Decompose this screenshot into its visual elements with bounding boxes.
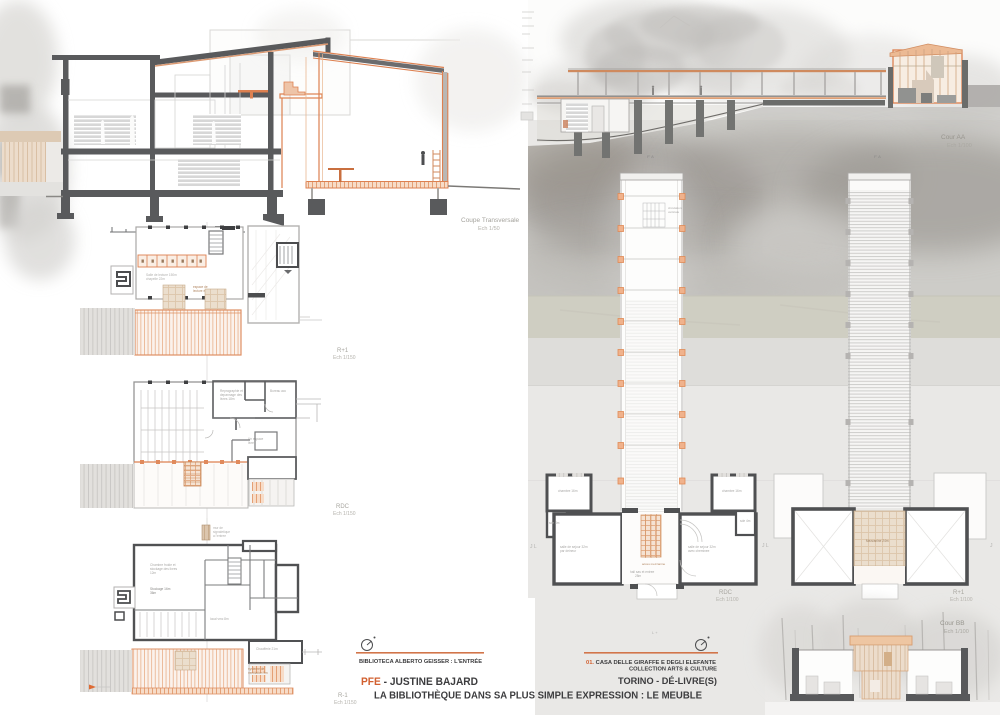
svg-text:28m: 28m <box>635 574 642 578</box>
svg-text:36m: 36m <box>150 591 157 595</box>
svg-text:TORINO - DÉ-LIVRE(S): TORINO - DÉ-LIVRE(S) <box>618 675 717 686</box>
svg-text:local vmc 8m: local vmc 8m <box>210 617 229 621</box>
svg-text:R+1: R+1 <box>953 590 965 596</box>
svg-text:12m: 12m <box>150 571 157 575</box>
svg-text:verticale: verticale <box>668 210 680 214</box>
svg-text:01. CASA DELLE GIRAFFE E DEGLI: 01. CASA DELLE GIRAFFE E DEGLI ELEFANTE <box>586 660 716 666</box>
svg-text:Ech 1/100: Ech 1/100 <box>947 143 972 149</box>
svg-text:par deineur: par deineur <box>560 549 577 553</box>
svg-text:Ech 1/150: Ech 1/150 <box>334 700 357 706</box>
svg-text:Ech 1/150: Ech 1/150 <box>333 355 356 361</box>
svg-text:F' A: F' A <box>647 154 654 159</box>
svg-text:livre: livre <box>248 441 254 445</box>
svg-text:J L: J L <box>762 543 769 549</box>
svg-text:hall sas et entree: hall sas et entree <box>630 570 655 574</box>
svg-text:RDC: RDC <box>719 590 733 596</box>
svg-text:Cour AA: Cour AA <box>941 134 966 141</box>
svg-text:R-1: R-1 <box>338 693 348 699</box>
svg-text:sde 4m: sde 4m <box>549 521 560 525</box>
svg-text:R+1: R+1 <box>337 348 349 354</box>
svg-text:F' A: F' A <box>874 154 881 159</box>
svg-text:Cour BB: Cour BB <box>940 620 965 627</box>
svg-text:RDC: RDC <box>336 504 350 510</box>
svg-text:chambre 16m: chambre 16m <box>722 489 742 493</box>
svg-text:Ech 1/150: Ech 1/150 <box>333 511 356 517</box>
svg-text:BIBLIOTECA ALBERTO GEISSER : L: BIBLIOTECA ALBERTO GEISSER : L'ENTRÉE <box>359 657 482 665</box>
svg-text:J L: J L <box>530 544 537 550</box>
svg-text:Ech 1/50: Ech 1/50 <box>478 226 500 232</box>
svg-text:ventilation 9m: ventilation 9m <box>248 671 268 675</box>
svg-text:Mezzanine 24m: Mezzanine 24m <box>866 539 889 543</box>
svg-text:avec cheminee: avec cheminee <box>688 549 710 553</box>
svg-text:Ech 1/100: Ech 1/100 <box>950 597 973 603</box>
svg-text:Bureau acc: Bureau acc <box>270 389 287 393</box>
svg-text:sde 4m: sde 4m <box>740 519 751 523</box>
svg-text:chambre 16m: chambre 16m <box>558 489 578 493</box>
svg-text:LA BIBLIOTHÈQUE DANS SA PLUS S: LA BIBLIOTHÈQUE DANS SA PLUS SIMPLE EXPR… <box>374 689 702 702</box>
svg-text:acces mezzanine: acces mezzanine <box>642 562 666 566</box>
svg-text:Ech 1/100: Ech 1/100 <box>716 597 739 603</box>
svg-text:Chaufferie 21m: Chaufferie 21m <box>256 647 278 651</box>
svg-text:livres 18m: livres 18m <box>220 397 235 401</box>
svg-text:COLLECTION ARTS & CULTURE: COLLECTION ARTS & CULTURE <box>629 667 717 673</box>
svg-text:Coupe Transversale: Coupe Transversale <box>461 217 520 224</box>
svg-text:chapelle 22m: chapelle 22m <box>146 277 165 281</box>
svg-text:a l'entree: a l'entree <box>213 534 226 538</box>
svg-text:PFE - JUSTINE BAJARD: PFE - JUSTINE BAJARD <box>361 676 478 688</box>
svg-text:L +: L + <box>652 630 658 635</box>
svg-text:Ech 1/100: Ech 1/100 <box>944 629 969 635</box>
